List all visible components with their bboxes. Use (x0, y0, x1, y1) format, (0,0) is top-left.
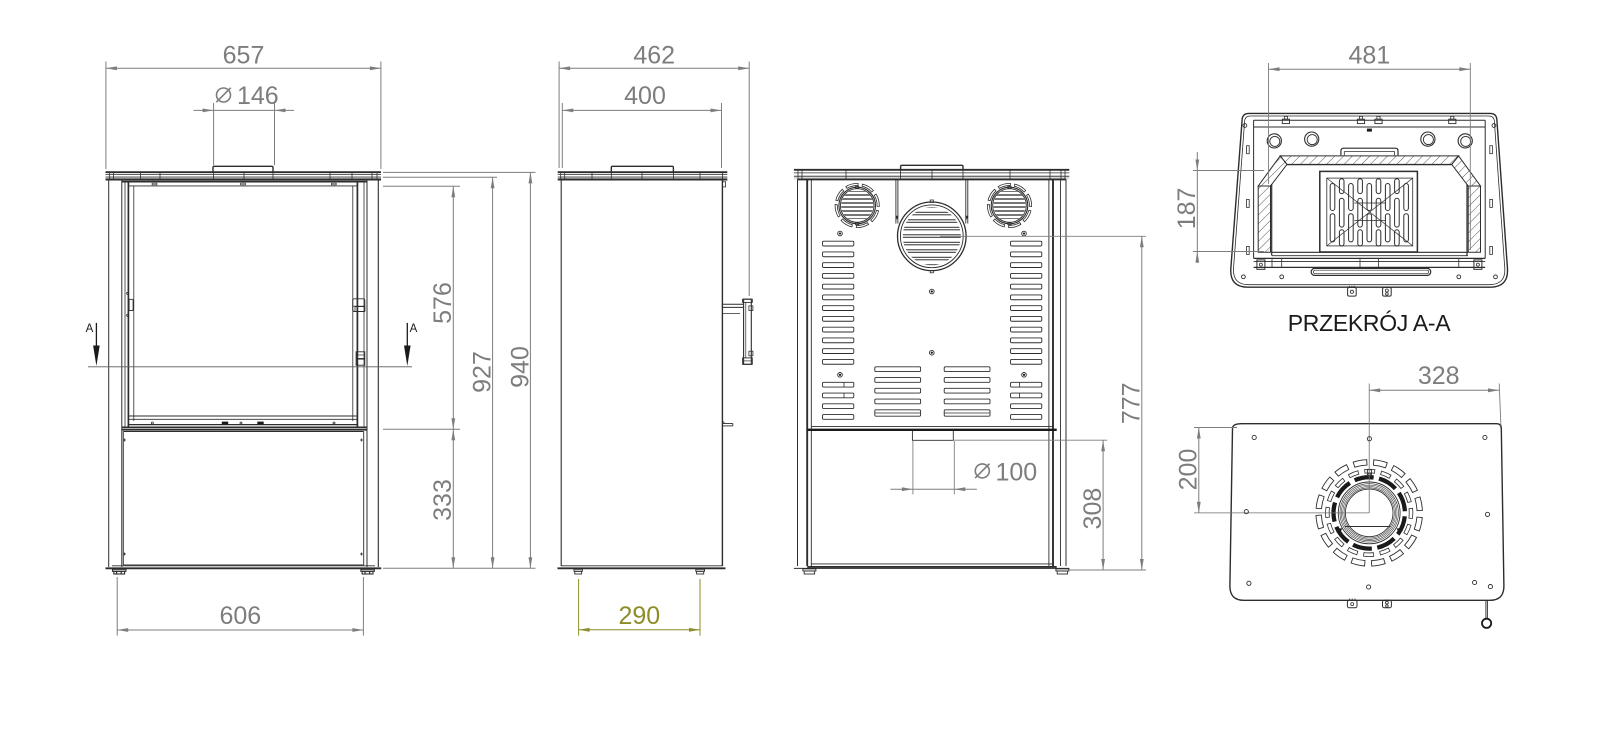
svg-text:100: 100 (996, 458, 1038, 486)
svg-text:A: A (86, 323, 94, 335)
svg-text:400: 400 (624, 82, 666, 110)
svg-text:576: 576 (429, 282, 457, 324)
svg-text:462: 462 (633, 42, 675, 70)
svg-text:187: 187 (1173, 188, 1201, 230)
svg-text:333: 333 (429, 479, 457, 521)
svg-text:A: A (410, 323, 418, 335)
svg-text:308: 308 (1079, 488, 1107, 530)
svg-text:940: 940 (506, 346, 534, 388)
svg-text:PRZEKRÓJ A-A: PRZEKRÓJ A-A (1288, 310, 1452, 336)
svg-text:146: 146 (237, 82, 279, 110)
svg-text:328: 328 (1418, 362, 1460, 390)
svg-text:481: 481 (1349, 42, 1391, 70)
svg-text:290: 290 (618, 602, 660, 630)
svg-text:657: 657 (223, 42, 265, 70)
svg-text:606: 606 (219, 602, 261, 630)
svg-text:200: 200 (1174, 449, 1202, 491)
svg-text:777: 777 (1117, 382, 1145, 424)
svg-text:927: 927 (468, 351, 496, 393)
